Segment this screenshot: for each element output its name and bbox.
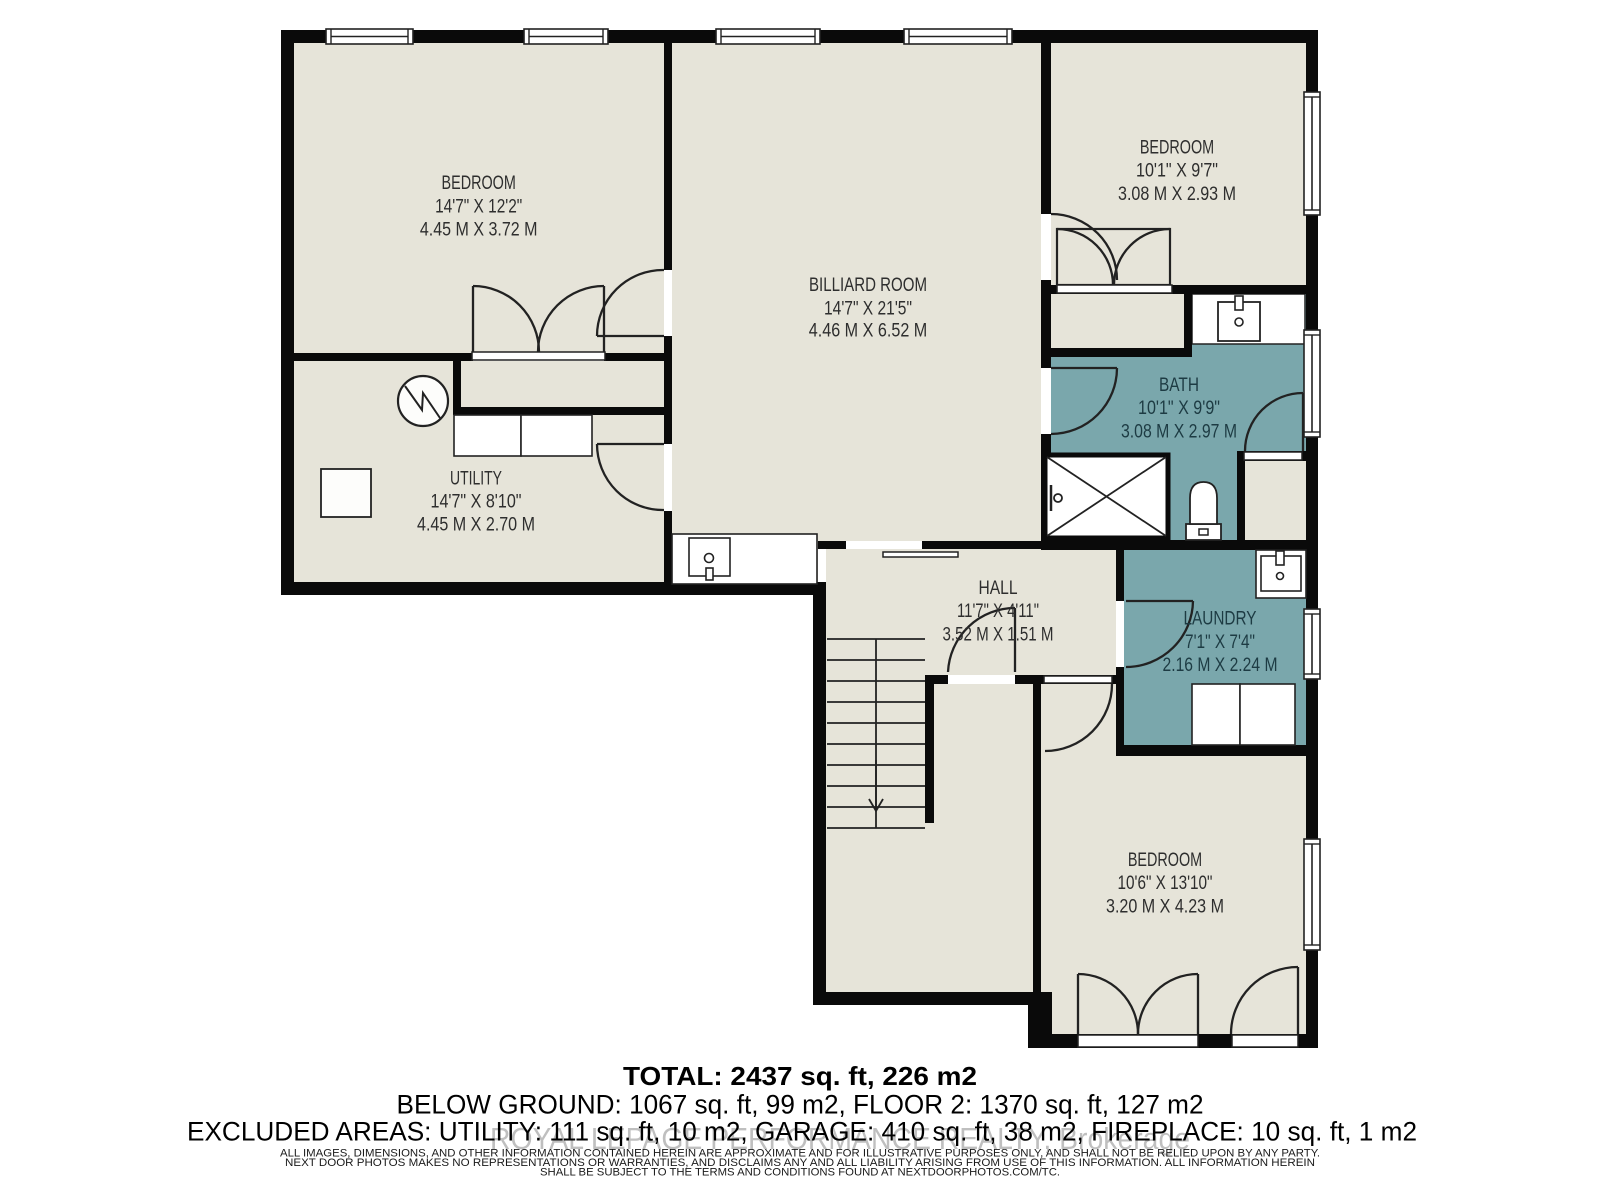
svg-text:BILLIARD ROOM: BILLIARD ROOM [809,275,927,296]
svg-text:EXCLUDED AREAS: UTILITY: 111 s: EXCLUDED AREAS: UTILITY: 111 sq. ft, 10 … [187,1117,1417,1147]
svg-text:TOTAL: 2437 sq. ft, 226 m2: TOTAL: 2437 sq. ft, 226 m2 [623,1063,977,1091]
svg-text:3.52 M X 1.51 M: 3.52 M X 1.51 M [943,624,1054,645]
svg-text:10'1" X 9'7": 10'1" X 9'7" [1136,161,1218,182]
svg-text:10'1" X 9'9": 10'1" X 9'9" [1138,398,1220,419]
svg-text:2.16 M X 2.24 M: 2.16 M X 2.24 M [1163,655,1278,676]
svg-text:3.08 M X 2.97 M: 3.08 M X 2.97 M [1121,421,1237,442]
svg-text:4.45 M X 3.72 M: 4.45 M X 3.72 M [420,220,538,241]
svg-text:7'1" X 7'4": 7'1" X 7'4" [1185,632,1255,653]
svg-text:HALL: HALL [979,578,1018,599]
svg-text:10'6" X 13'10": 10'6" X 13'10" [1118,873,1213,894]
svg-text:4.46 M X 6.52 M: 4.46 M X 6.52 M [809,321,928,342]
svg-text:BEDROOM: BEDROOM [442,173,516,194]
svg-text:BEDROOM: BEDROOM [1140,138,1214,159]
svg-text:3.08 M X 2.93 M: 3.08 M X 2.93 M [1118,184,1236,205]
svg-text:11'7" X 4'11": 11'7" X 4'11" [957,601,1039,622]
svg-text:LAUNDRY: LAUNDRY [1184,609,1257,630]
svg-text:4.45 M X 2.70 M: 4.45 M X 2.70 M [417,515,535,536]
svg-text:SHALL BE SUBJECT TO THE TERMS: SHALL BE SUBJECT TO THE TERMS AND CONDIT… [540,1167,1060,1179]
svg-text:14'7" X 12'2": 14'7" X 12'2" [435,196,522,217]
svg-text:14'7" X 8'10": 14'7" X 8'10" [431,492,522,513]
svg-text:3.20 M X 4.23 M: 3.20 M X 4.23 M [1106,896,1224,917]
svg-text:14'7" X 21'5": 14'7" X 21'5" [824,299,912,320]
svg-text:BEDROOM: BEDROOM [1128,850,1202,871]
svg-text:BATH: BATH [1159,375,1199,396]
svg-text:UTILITY: UTILITY [450,468,502,489]
svg-text:BELOW GROUND: 1067 sq. ft, 99: BELOW GROUND: 1067 sq. ft, 99 m2, FLOOR … [397,1090,1204,1120]
